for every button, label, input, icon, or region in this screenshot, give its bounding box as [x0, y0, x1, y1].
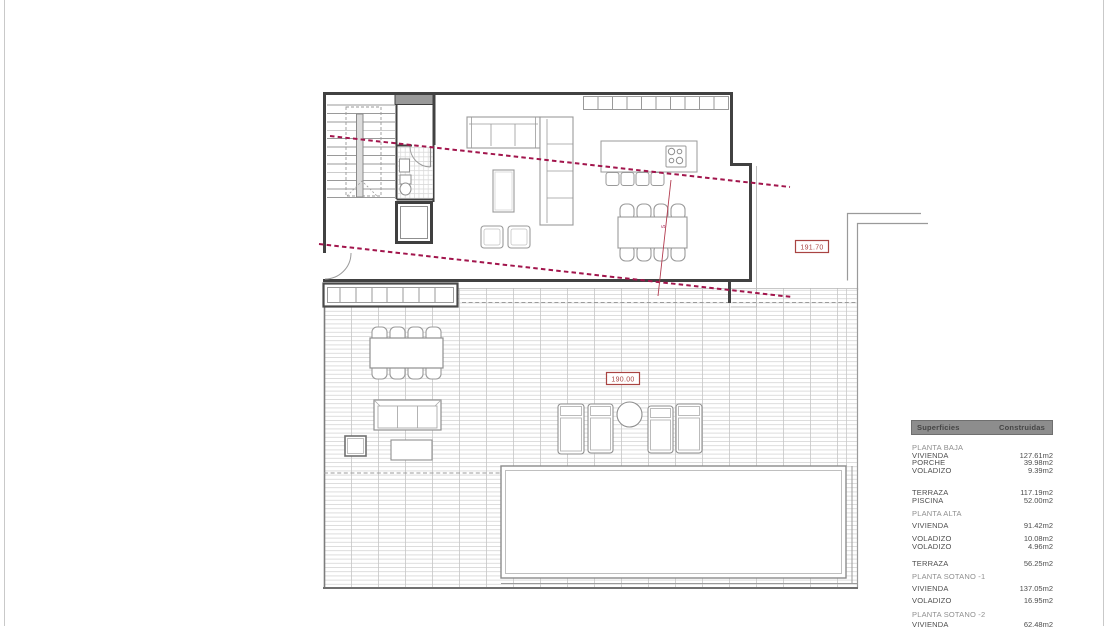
row-label: VOLADIZO	[912, 543, 952, 551]
row-value: 62.48m2	[1024, 621, 1053, 629]
surfaces-header-right: Construidas	[999, 423, 1045, 432]
toilet	[400, 175, 411, 195]
row-value: 16.95m2	[1024, 597, 1053, 605]
pouf	[508, 226, 530, 248]
row-value: 9.39m2	[1028, 467, 1053, 475]
table-row: PISCINA52.00m2	[911, 497, 1053, 505]
table-row: PLANTA SOTANO -2	[911, 611, 1053, 619]
table-row: VIVIENDA62.48m2	[911, 621, 1053, 629]
stair-rail	[357, 114, 364, 197]
row-value: 4.96m2	[1028, 543, 1053, 551]
row-label: PISCINA	[912, 497, 943, 505]
surfaces-table-body: PLANTA BAJA VIVIENDA127.61m2 PORCHE39.98…	[911, 435, 1053, 628]
row-label: VOLADIZO	[912, 597, 952, 605]
table-row: VOLADIZO9.39m2	[911, 467, 1053, 475]
outdoor-coffee-table	[391, 440, 432, 460]
sun-lounger	[648, 406, 673, 453]
outdoor-side-table	[345, 436, 366, 456]
sun-lounger	[588, 404, 613, 453]
planter-box	[324, 284, 458, 307]
row-value: 56.25m2	[1024, 560, 1053, 568]
bathroom	[398, 146, 433, 198]
sun-lounger	[558, 404, 584, 454]
table-row: VIVIENDA137.05m2	[911, 585, 1053, 593]
outdoor-sofa	[374, 400, 441, 430]
kitchen-cabinets	[584, 97, 729, 110]
table-row: VOLADIZO4.96m2	[911, 543, 1053, 551]
floor-plan-page: { "plan_labels": { "upper_level": "191.7…	[0, 0, 1110, 626]
svg-text:190.00: 190.00	[611, 377, 634, 384]
swimming-pool	[501, 466, 857, 584]
table-row: VIVIENDA91.42m2	[911, 522, 1053, 530]
sink	[400, 159, 410, 172]
dining-table	[618, 217, 687, 248]
pouf	[481, 226, 503, 248]
surfaces-header-left: Superficies	[917, 423, 960, 432]
table-row: PLANTA SOTANO -1	[911, 573, 1053, 581]
surfaces-table-header: Superficies Construidas	[911, 420, 1053, 435]
overhang-boundary-lines	[848, 214, 929, 291]
lower-level-label: 190.00	[607, 373, 640, 385]
row-label: VIVIENDA	[912, 585, 949, 593]
row-value: 91.42m2	[1024, 522, 1053, 530]
row-value: 137.05m2	[1020, 585, 1053, 593]
surfaces-table: Superficies Construidas PLANTA BAJA VIVI…	[911, 420, 1053, 628]
elevator-shaft	[397, 203, 432, 243]
pool-side-table	[617, 402, 642, 427]
row-label: TERRAZA	[912, 560, 948, 568]
row-label: VIVIENDA	[912, 621, 949, 629]
table-row: TERRAZA56.25m2	[911, 560, 1053, 568]
svg-text:191.70: 191.70	[800, 245, 823, 252]
row-value: 52.00m2	[1024, 497, 1053, 505]
row-label: VOLADIZO	[912, 467, 952, 475]
section-mark-label: 5	[661, 225, 667, 229]
row-label: PLANTA SOTANO -2	[912, 611, 985, 619]
coffee-table	[493, 170, 514, 212]
sun-lounger	[676, 404, 702, 453]
upper-level-label: 191.70	[796, 241, 829, 253]
wall-block	[395, 95, 433, 105]
row-label: PLANTA ALTA	[912, 510, 962, 518]
outdoor-table	[370, 338, 443, 368]
row-label: PLANTA SOTANO -1	[912, 573, 985, 581]
row-label: VIVIENDA	[912, 522, 949, 530]
table-row: VOLADIZO16.95m2	[911, 597, 1053, 605]
table-row: PLANTA ALTA	[911, 510, 1053, 518]
